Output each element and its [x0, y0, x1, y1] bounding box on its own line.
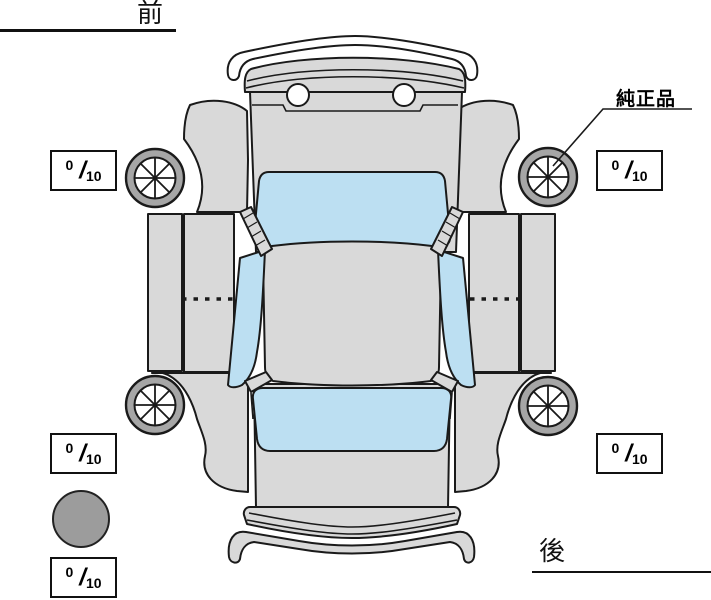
tread-denominator: 10	[632, 451, 648, 467]
rear-right-wheel-icon	[519, 377, 577, 435]
rear-underline	[532, 571, 711, 573]
rear-panel	[244, 507, 460, 538]
tread-box-rear-right: 0/10	[596, 433, 663, 474]
front-underline	[0, 29, 176, 32]
vehicle-condition-diagram: 前 後 純正品 0/10 0/10 0/10 0/10 0/10	[0, 0, 711, 600]
right-sill-panel	[521, 214, 555, 371]
tread-box-front-right: 0/10	[596, 150, 663, 191]
front-right-wheel-icon	[519, 148, 577, 206]
rear-left-wheel-icon	[126, 376, 184, 434]
spare-tire-icon	[52, 490, 110, 548]
tread-box-spare: 0/10	[50, 557, 117, 598]
right-door-panel	[469, 214, 519, 372]
tread-value: 0	[611, 157, 619, 173]
tread-slash: /	[625, 157, 632, 185]
roof	[263, 242, 441, 386]
front-right-fender	[455, 101, 519, 212]
tread-value: 0	[65, 564, 73, 580]
tread-value: 0	[65, 440, 73, 456]
tread-denominator: 10	[86, 451, 102, 467]
rear-window	[253, 388, 451, 451]
left-headlight-icon	[287, 84, 309, 106]
tread-value: 0	[65, 157, 73, 173]
front-panel	[245, 58, 466, 92]
tread-denominator: 10	[86, 575, 102, 591]
front-left-fender	[184, 101, 248, 212]
tread-slash: /	[79, 157, 86, 185]
windshield	[254, 172, 450, 247]
tread-box-front-left: 0/10	[50, 150, 117, 191]
tread-slash: /	[79, 564, 86, 592]
tread-denominator: 10	[632, 168, 648, 184]
tread-slash: /	[625, 440, 632, 468]
front-left-wheel-icon	[126, 149, 184, 207]
tread-value: 0	[611, 440, 619, 456]
tread-slash: /	[79, 440, 86, 468]
front-label: 前	[137, 1, 163, 27]
rear-label: 後	[539, 539, 565, 565]
genuine-part-label: 純正品	[616, 84, 676, 111]
tread-denominator: 10	[86, 168, 102, 184]
right-headlight-icon	[393, 84, 415, 106]
left-sill-panel	[148, 214, 182, 371]
tread-box-rear-left: 0/10	[50, 433, 117, 474]
left-door-panel	[184, 214, 234, 372]
